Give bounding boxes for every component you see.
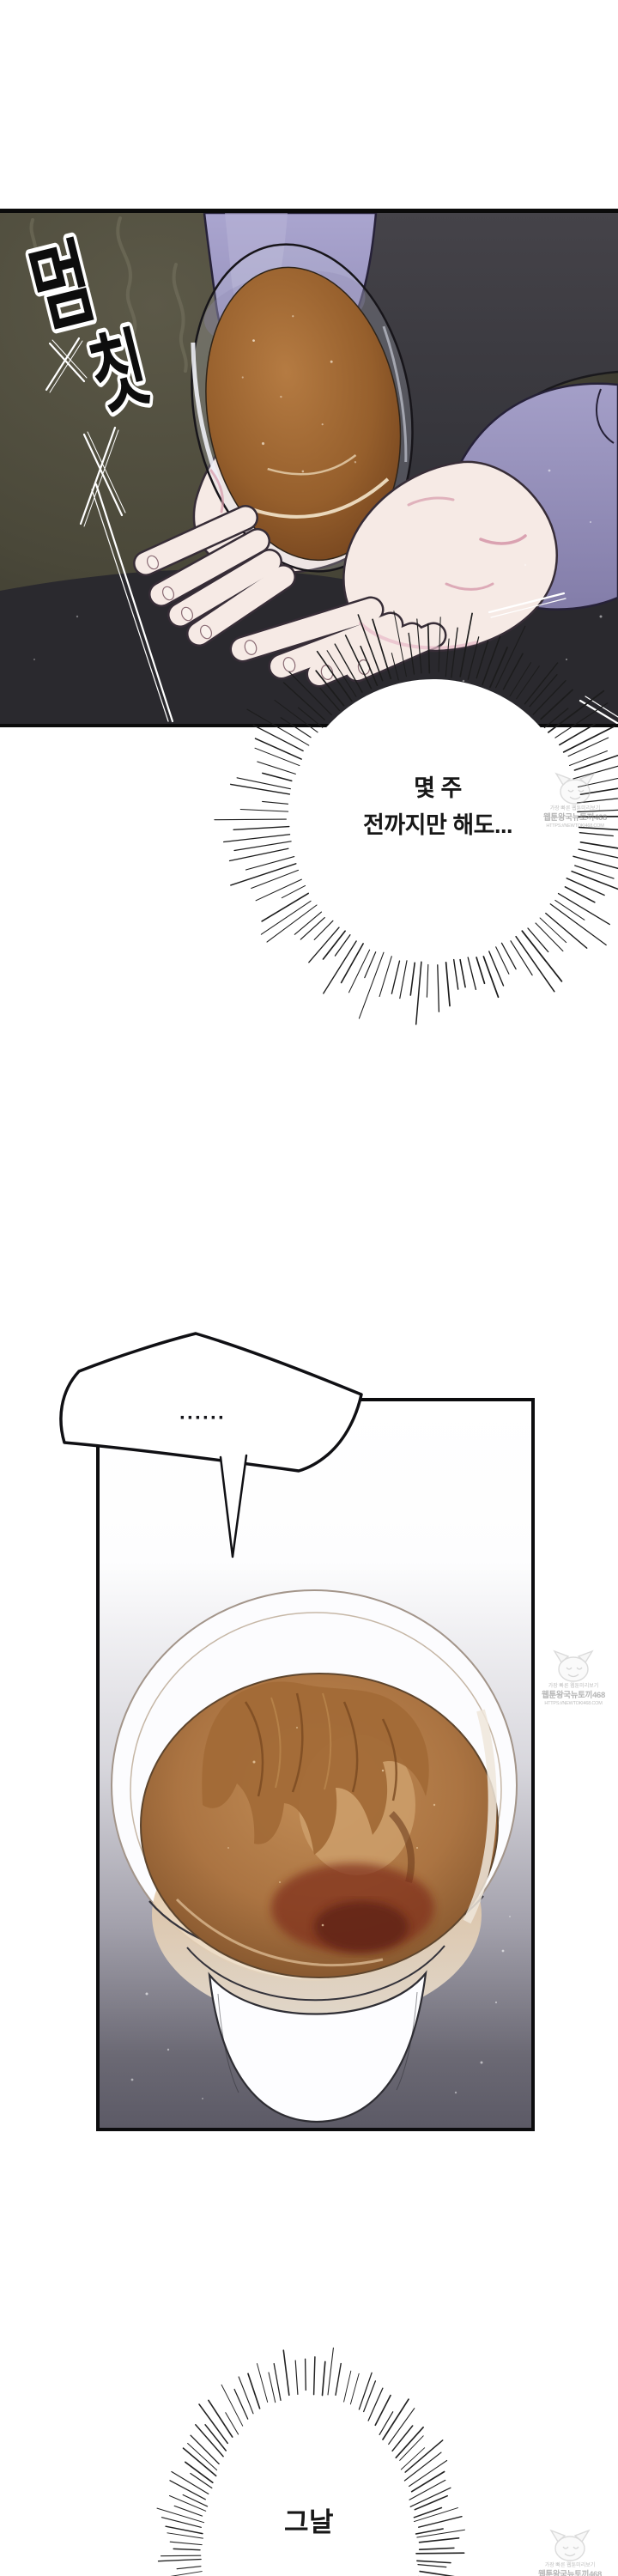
burst-bubble-2: [146, 2336, 472, 2576]
silence-bubble: [51, 1327, 378, 1571]
bubble-body: [205, 2397, 413, 2576]
bubble-line-2: 전까지만 해도...: [326, 807, 549, 844]
burst-bubble-1-text: 몇 주 전까지만 해도...: [326, 770, 549, 844]
watermark-goblin-icon: [546, 2528, 594, 2562]
sfx-char-2: 칫: [82, 319, 158, 426]
sfx-char-1: 멈: [21, 229, 104, 344]
bubble-outline: [61, 1334, 361, 1471]
watermark-line-3: HTTPS://NEWTOKI468.COM: [529, 1701, 618, 1707]
watermark-line-2: 웹툰왕국뉴토끼468: [529, 1691, 618, 1701]
burst-bubble-2-text: 그날: [249, 2500, 369, 2539]
site-watermark: 가장 빠른 웹툰미리보기 웹툰왕국뉴토끼468 HTTPS://NEWTOKI4…: [525, 2528, 615, 2576]
site-watermark: 가장 빠른 웹툰미리보기 웹툰왕국뉴토끼468 HTTPS://NEWTOKI4…: [529, 1649, 618, 1707]
bubble-line-1: 몇 주: [326, 770, 549, 807]
silence-bubble-text: ······: [168, 1408, 237, 1429]
sfx-flinch-text: 멈 칫: [7, 215, 204, 455]
watermark-line-2: 웹툰왕국뉴토끼468: [525, 2570, 615, 2576]
watermark-line-1: 가장 빠른 웹툰미리보기: [525, 2563, 615, 2570]
webtoon-page: 멈 칫 몇 주 전까지만 해도... 가장 빠른 웹툰미리보기 웹툰왕국뉴토끼4…: [0, 0, 618, 2576]
watermark-goblin-icon: [549, 1649, 597, 1683]
watermark-line-1: 가장 빠른 웹툰미리보기: [529, 1684, 618, 1691]
